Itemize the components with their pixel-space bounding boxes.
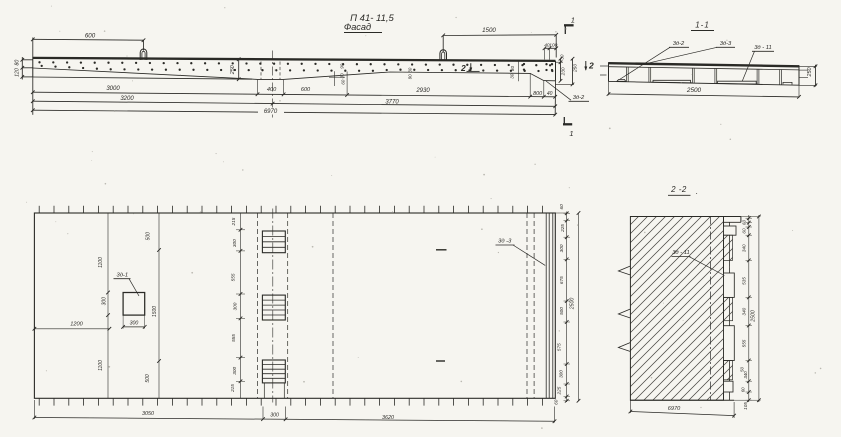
- svg-text:3770: 3770: [385, 100, 399, 106]
- svg-text:250: 250: [807, 68, 813, 78]
- svg-text:60: 60: [553, 399, 558, 405]
- svg-text:1500: 1500: [482, 27, 496, 34]
- svg-text:300: 300: [559, 370, 564, 378]
- svg-text:225: 225: [556, 386, 561, 395]
- svg-text:60: 60: [341, 79, 346, 85]
- svg-text:3д - 11: 3д - 11: [754, 45, 772, 51]
- svg-text:80: 80: [15, 60, 21, 66]
- svg-text:30: 30: [559, 54, 564, 60]
- svg-text:1: 1: [569, 129, 573, 138]
- svg-text:60: 60: [740, 387, 745, 392]
- svg-text:1: 1: [571, 16, 575, 25]
- svg-text:300: 300: [559, 244, 564, 252]
- svg-text:3200: 3200: [120, 96, 134, 102]
- svg-text:215: 215: [230, 384, 235, 393]
- svg-text:300: 300: [270, 413, 279, 419]
- svg-text:60: 60: [741, 228, 746, 234]
- svg-text:555: 555: [230, 273, 235, 281]
- svg-text:500: 500: [145, 232, 151, 241]
- svg-text:675: 675: [559, 276, 564, 284]
- svg-text:3д-2: 3д-2: [673, 41, 685, 47]
- svg-text:340: 340: [743, 371, 748, 379]
- svg-text:6970: 6970: [668, 406, 681, 412]
- svg-text:120: 120: [15, 68, 21, 77]
- svg-text:500: 500: [145, 374, 151, 383]
- svg-text:215: 215: [231, 217, 236, 226]
- svg-text:800: 800: [533, 91, 542, 97]
- svg-text:1-1: 1-1: [695, 21, 710, 30]
- svg-text:3д-3: 3д-3: [720, 41, 732, 47]
- svg-text:2930: 2930: [415, 88, 430, 94]
- svg-text:30: 30: [408, 67, 413, 73]
- svg-text:2500: 2500: [751, 310, 757, 323]
- svg-text:300: 300: [232, 367, 237, 375]
- svg-text:1500: 1500: [152, 306, 158, 317]
- svg-text:2: 2: [460, 63, 466, 73]
- svg-text:30: 30: [340, 73, 345, 79]
- svg-text:2500: 2500: [569, 298, 575, 311]
- svg-text:60: 60: [741, 220, 746, 226]
- svg-text:3д - 11: 3д - 11: [672, 250, 690, 256]
- svg-text:2: 2: [588, 61, 594, 71]
- svg-text:30: 30: [509, 73, 514, 79]
- svg-text:1100: 1100: [98, 257, 104, 268]
- svg-text:50: 50: [739, 367, 744, 372]
- svg-text:575: 575: [557, 343, 562, 351]
- svg-text:250: 250: [230, 65, 236, 75]
- svg-text:1200: 1200: [70, 322, 83, 328]
- svg-text:3000: 3000: [106, 86, 120, 92]
- svg-text:90: 90: [340, 63, 345, 69]
- svg-text:100: 100: [549, 42, 557, 48]
- svg-text:225: 225: [560, 224, 565, 233]
- svg-text:500: 500: [559, 307, 564, 315]
- svg-text:60: 60: [559, 204, 564, 210]
- svg-text:.: .: [696, 187, 698, 196]
- svg-text:400: 400: [267, 87, 277, 93]
- svg-text:600: 600: [301, 87, 311, 93]
- svg-text:555: 555: [741, 339, 746, 347]
- svg-text:340: 340: [741, 244, 746, 252]
- svg-text:250: 250: [572, 64, 578, 73]
- svg-text:555: 555: [231, 334, 236, 342]
- svg-text:80: 80: [510, 66, 515, 72]
- svg-text:300: 300: [232, 239, 237, 247]
- svg-text:230: 230: [560, 67, 566, 76]
- svg-text:300: 300: [130, 321, 139, 327]
- svg-text:300: 300: [102, 297, 108, 306]
- svg-text:1100: 1100: [98, 360, 104, 371]
- svg-text:6970: 6970: [264, 109, 278, 115]
- svg-text:600: 600: [85, 33, 96, 40]
- svg-text:3д -3: 3д -3: [498, 239, 512, 245]
- svg-text:90: 90: [408, 74, 413, 80]
- svg-text:3д-1: 3д-1: [117, 273, 129, 279]
- svg-text:2 -2: 2 -2: [670, 185, 687, 194]
- svg-text:535: 535: [741, 277, 746, 285]
- svg-text:300: 300: [233, 302, 238, 310]
- svg-text:105: 105: [743, 402, 748, 410]
- svg-text:3620: 3620: [382, 415, 394, 421]
- svg-text:340: 340: [741, 307, 746, 315]
- svg-text:3д-2: 3д-2: [573, 95, 585, 101]
- svg-text:2500: 2500: [686, 87, 702, 94]
- svg-text:40: 40: [547, 91, 553, 97]
- svg-text:Фасад: Фасад: [344, 22, 371, 32]
- svg-text:3050: 3050: [142, 411, 154, 417]
